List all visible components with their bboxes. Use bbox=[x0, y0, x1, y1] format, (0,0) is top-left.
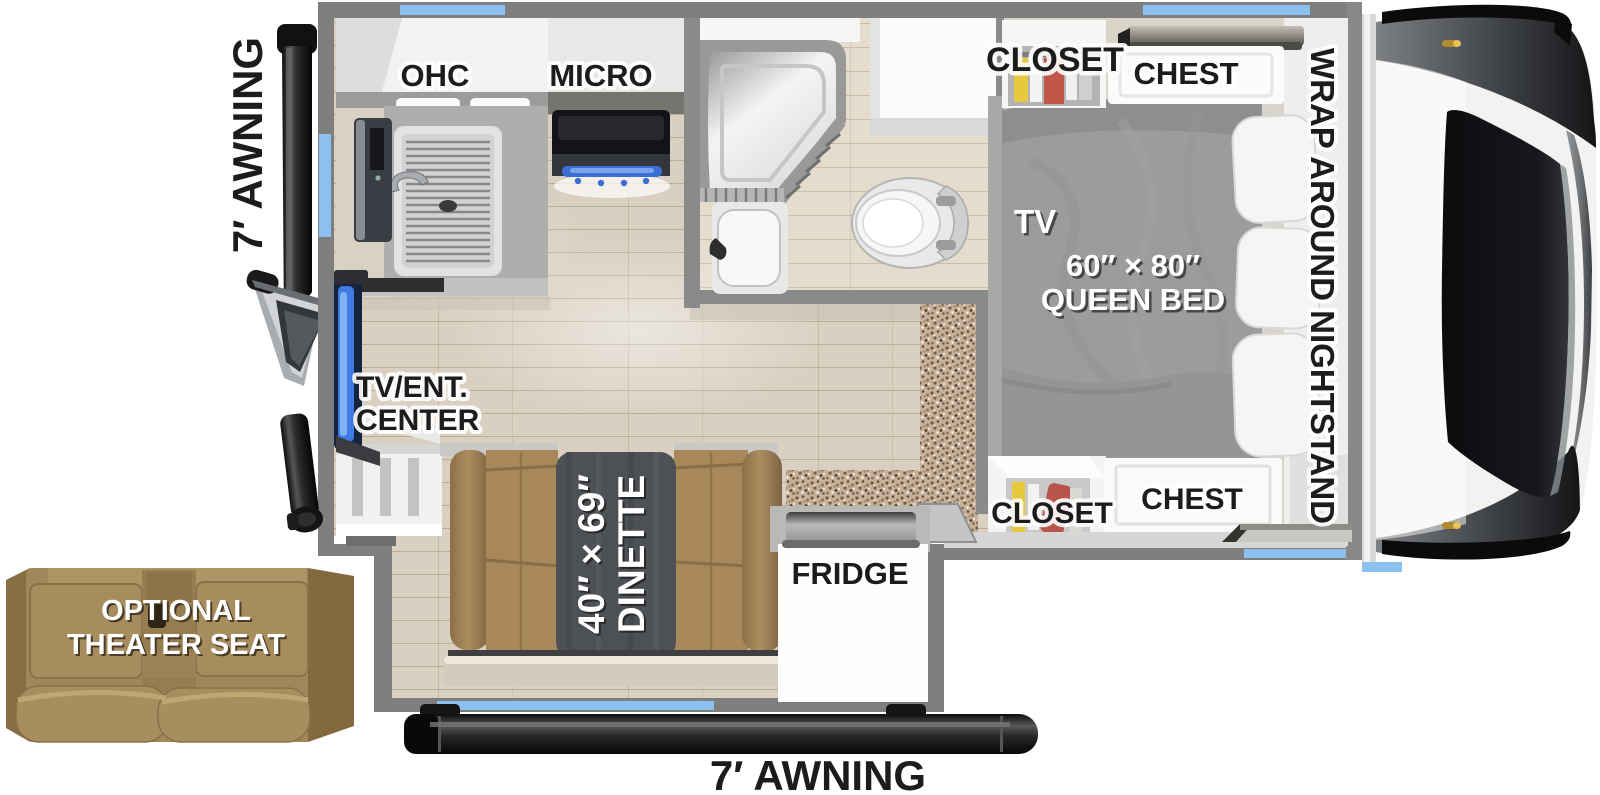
svg-text:CENTER: CENTER bbox=[356, 404, 480, 437]
svg-text:CLOSET: CLOSET bbox=[986, 41, 1124, 79]
svg-text:OHC: OHC bbox=[401, 58, 470, 93]
svg-text:TV: TV bbox=[1014, 203, 1056, 240]
svg-text:WRAP AROUND NIGHTSTAND: WRAP AROUND NIGHTSTAND bbox=[1304, 48, 1341, 524]
svg-text:MICRO: MICRO bbox=[549, 58, 652, 93]
svg-text:CLOSET: CLOSET bbox=[991, 497, 1113, 530]
svg-text:40″ × 69″: 40″ × 69″ bbox=[571, 474, 612, 634]
svg-text:CHEST: CHEST bbox=[1133, 56, 1238, 91]
svg-text:TV/ENT.: TV/ENT. bbox=[356, 371, 468, 404]
svg-text:DINETTE: DINETTE bbox=[611, 475, 652, 633]
svg-text:7′ AWNING: 7′ AWNING bbox=[224, 37, 271, 253]
svg-text:THEATER SEAT: THEATER SEAT bbox=[67, 629, 285, 661]
svg-text:OPTIONAL: OPTIONAL bbox=[101, 595, 251, 627]
svg-text:FRIDGE: FRIDGE bbox=[791, 556, 908, 591]
svg-text:7′ AWNING: 7′ AWNING bbox=[710, 752, 926, 795]
svg-text:CHEST: CHEST bbox=[1141, 483, 1243, 516]
svg-text:60″ × 80″: 60″ × 80″ bbox=[1066, 248, 1200, 283]
svg-text:QUEEN BED: QUEEN BED bbox=[1041, 282, 1225, 317]
